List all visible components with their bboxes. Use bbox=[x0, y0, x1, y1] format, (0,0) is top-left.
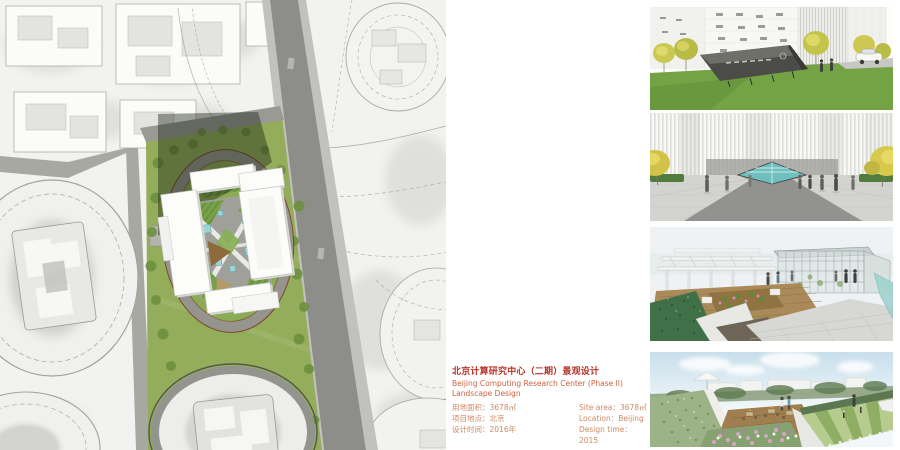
roof-garden-render bbox=[650, 352, 893, 447]
detail-site-area-cn: 用地面积：3678㎡ bbox=[452, 403, 579, 414]
detail-location-cn: 项目地点：北京 bbox=[452, 414, 579, 425]
detail-site-area-en: Site area：3678㎡ bbox=[579, 403, 648, 414]
roof-terrace-render bbox=[650, 227, 893, 341]
site-plan-drawing bbox=[0, 0, 446, 450]
portfolio-sheet: 北京计算研究中心（二期）景观设计 Beijing Computing Resea… bbox=[0, 0, 900, 450]
plaza-skylight-render bbox=[650, 113, 893, 221]
site-plan bbox=[0, 0, 446, 450]
project-details: 用地面积：3678㎡ Site area：3678㎡ 项目地点：北京 Locat… bbox=[452, 403, 648, 446]
project-title-cn: 北京计算研究中心（二期）景观设计 bbox=[452, 366, 648, 378]
project-title-en: Beijing Computing Research Center (Phase… bbox=[452, 379, 648, 399]
project-info: 北京计算研究中心（二期）景观设计 Beijing Computing Resea… bbox=[452, 366, 648, 446]
detail-design-time-en: Design time：2015 bbox=[579, 425, 648, 446]
detail-location-en: Location：Beijing bbox=[579, 414, 648, 425]
entrance-monument-render bbox=[650, 7, 893, 110]
detail-design-time-cn: 设计时间：2016年 bbox=[452, 425, 579, 446]
render-column bbox=[650, 0, 893, 450]
